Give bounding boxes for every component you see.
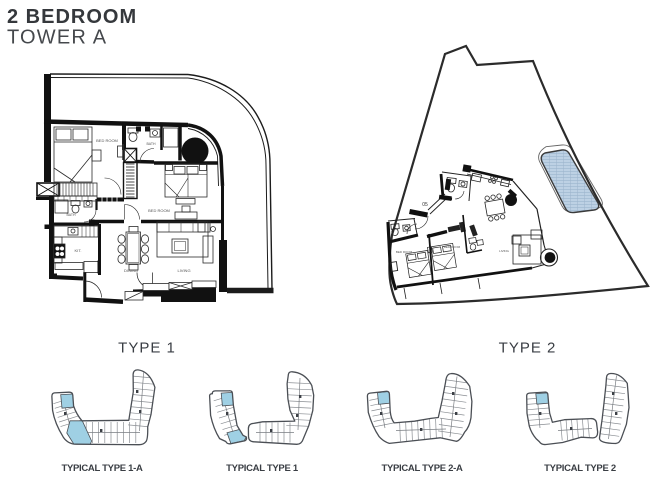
svg-text:DINING: DINING bbox=[124, 268, 138, 273]
svg-text:KIT.: KIT. bbox=[75, 248, 82, 253]
svg-text:LIVING: LIVING bbox=[177, 268, 190, 273]
svg-text:BED ROOM: BED ROOM bbox=[444, 245, 461, 249]
svg-text:TYPE 2: TYPE 2 bbox=[499, 340, 557, 357]
svg-text:TYPICAL TYPE 1: TYPICAL TYPE 1 bbox=[226, 463, 299, 474]
svg-text:BED ROOM: BED ROOM bbox=[148, 208, 170, 213]
svg-text:LIVING: LIVING bbox=[499, 249, 510, 253]
svg-text:05: 05 bbox=[422, 202, 428, 208]
svg-text:2 BEDROOM: 2 BEDROOM bbox=[7, 6, 137, 28]
svg-text:TYPICAL TYPE 2-A: TYPICAL TYPE 2-A bbox=[381, 463, 463, 474]
svg-text:BED ROOM: BED ROOM bbox=[96, 138, 118, 143]
svg-text:TYPICAL TYPE 1-A: TYPICAL TYPE 1-A bbox=[61, 463, 143, 474]
svg-text:TOWER A: TOWER A bbox=[7, 27, 107, 49]
svg-text:BED ROOM: BED ROOM bbox=[396, 250, 413, 254]
svg-text:BATH: BATH bbox=[66, 213, 76, 217]
svg-text:TYPICAL TYPE 2: TYPICAL TYPE 2 bbox=[544, 463, 616, 474]
svg-text:BATH: BATH bbox=[146, 142, 156, 146]
svg-text:TYPE 1: TYPE 1 bbox=[118, 340, 176, 357]
